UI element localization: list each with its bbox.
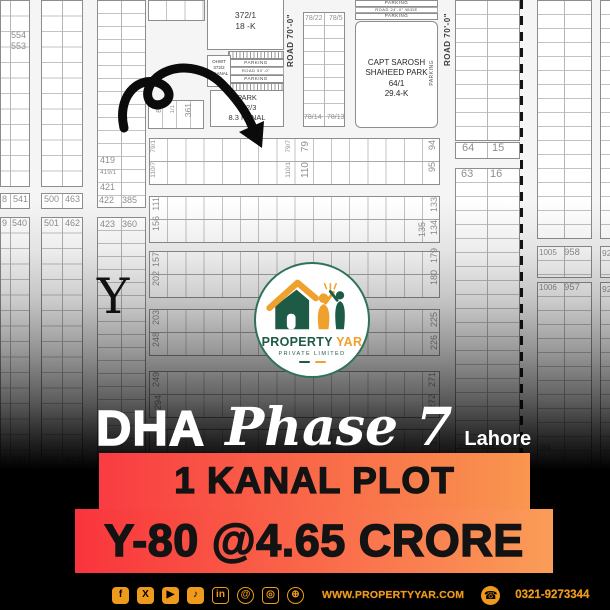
map-grid-block: [455, 0, 520, 141]
tiktok-icon: ♪: [187, 587, 204, 604]
plot-label: 180: [430, 270, 439, 285]
parking-label: PARKING: [385, 14, 408, 19]
plot-label: 94: [541, 443, 550, 452]
plot-label: 110/7: [151, 162, 158, 178]
road-70-label-right: ROAD 70'-0": [443, 13, 452, 66]
plot-label: 202: [152, 271, 161, 286]
plot-label: 134: [430, 220, 439, 235]
logo-dashes: [299, 361, 326, 364]
plot-label: 421: [100, 183, 115, 192]
plot-label: 419: [100, 156, 115, 165]
plot-label: 248: [152, 332, 161, 347]
plot-label: 419/1: [100, 170, 116, 177]
road-70-label-left: ROAD 70'-0": [286, 14, 295, 67]
map-grid-block: [41, 217, 83, 477]
plot-label: 111: [152, 197, 161, 211]
offer-line-1: 1 KANAL PLOT: [174, 460, 455, 502]
offer-band-2: Y-80 @4.65 CRORE: [75, 509, 553, 573]
plot-label: 226: [430, 335, 439, 350]
road-24-label: ROAD 24'-0" WIDE: [375, 8, 417, 12]
plot-label: 64: [462, 143, 474, 154]
headline-city: Lahore: [464, 428, 531, 450]
plot-label: 156: [152, 216, 161, 231]
parking-strip: PARKING: [355, 0, 438, 7]
plot-label: 271: [428, 372, 437, 387]
map-grid-block: [600, 0, 610, 239]
phone-number: 0321-9273344: [515, 589, 589, 601]
plot-label: 95: [428, 162, 437, 172]
logo-wordmark: PROPERTY YAR: [262, 336, 363, 349]
headline-dha: DHA: [96, 402, 205, 456]
logo-name-property: PROPERTY: [262, 335, 333, 349]
plot-label: 110/1: [286, 162, 293, 178]
plot-label: 63: [461, 169, 473, 180]
plot-label: 553: [11, 42, 26, 51]
plot-label: 179: [430, 248, 439, 263]
logo-name-yar: YAR: [336, 335, 362, 349]
plot-label: 463: [65, 195, 80, 204]
logo-house-icon: [266, 277, 358, 335]
instagram-icon: ◎: [262, 587, 279, 604]
youtube-icon: ▶: [162, 587, 179, 604]
plot-label: 520: [43, 456, 58, 465]
block-372-line1: 372/1: [207, 10, 284, 21]
plot-label: 16: [490, 169, 502, 180]
x-icon: X: [137, 587, 154, 604]
plot-label: 92: [602, 249, 610, 258]
plot-label: 15: [492, 143, 504, 154]
footer-bar: fX▶♪in@◎⊕ WWW.PROPERTYYAR.COM ☎ 0321-927…: [0, 580, 610, 610]
hand-drawn-arrow: [100, 38, 280, 156]
plot-label: 521: [12, 456, 27, 465]
plot-label: 94: [428, 140, 437, 150]
plot-label: 8: [2, 456, 7, 465]
map-grid-block: [600, 282, 610, 477]
captpark-line2: SHAHEED PARK: [355, 68, 438, 78]
plot-label: 500: [44, 195, 59, 204]
flyer-canvas: 372/1 18 -K PARKING ROAD 50'-0" PARKING …: [0, 0, 610, 610]
plot-label: 540: [12, 219, 27, 228]
plot-label: 443: [65, 456, 80, 465]
plot-label: 78/5: [329, 15, 343, 22]
plot-label: 360: [122, 220, 137, 229]
plot-label: 423: [100, 220, 115, 229]
plot-label: 78/22: [305, 15, 323, 22]
plot-label: 1006: [539, 284, 557, 292]
globe-icon: ⊕: [287, 587, 304, 604]
plot-label: 110: [301, 162, 311, 178]
threads-icon: @: [237, 587, 254, 604]
property-yar-logo: PROPERTY YAR PRIVATE LIMITED: [254, 262, 370, 378]
map-block-372-1-label: 372/1 18 -K: [207, 10, 284, 32]
plot-label: 157: [152, 252, 161, 267]
whatsapp-phone-icon: ☎: [481, 586, 500, 605]
phone-glyph: ☎: [484, 589, 498, 602]
offer-line-2: Y-80 @4.65 CRORE: [104, 515, 524, 567]
map-grid-block: [0, 217, 30, 477]
plot-label: 92: [602, 285, 610, 294]
logo-subtitle: PRIVATE LIMITED: [279, 351, 346, 357]
parking-label-vertical: PARKING: [429, 60, 435, 86]
section-letter-y: Y: [97, 268, 129, 325]
map-grid-block: [0, 0, 30, 187]
plot-label: 79: [301, 141, 311, 152]
captpark-line3: 64/1: [355, 79, 438, 89]
map-grid-block: [41, 0, 83, 187]
map-grid-block: [149, 196, 440, 243]
plot-label: 541: [13, 195, 28, 204]
headline: DHAPhase 7Lahore: [96, 397, 531, 458]
block-372-line2: 18 -K: [207, 21, 284, 32]
plot-label: 1005: [539, 249, 557, 257]
parking-strip: PARKING: [355, 13, 438, 20]
plot-label: 385: [122, 196, 137, 205]
plot-label: 78/13: [327, 114, 345, 121]
plot-label: 79/7: [286, 140, 293, 153]
social-icons: fX▶♪in@◎⊕: [112, 587, 304, 604]
parking-label: PARKING: [385, 1, 408, 6]
plot-label: 78/14: [304, 114, 322, 121]
plot-label: 554: [11, 31, 26, 40]
plot-label: 501: [44, 219, 59, 228]
map-block-capt-sarosh-park-label: CAPT SAROSH SHAHEED PARK 64/1 29.4-K: [355, 58, 438, 100]
plot-label: 133: [430, 197, 439, 212]
headline-phase: Phase 7: [225, 397, 452, 458]
map-grid-block: [303, 12, 345, 127]
plot-label: 249: [152, 372, 161, 387]
plot-label: 203: [152, 310, 161, 325]
website-url: WWW.PROPERTYYAR.COM: [322, 589, 464, 601]
plot-label: 462: [65, 219, 80, 228]
captpark-line4: 29.4-K: [355, 89, 438, 99]
plot-label: 225: [430, 312, 439, 327]
offer-band-1: 1 KANAL PLOT: [99, 453, 530, 509]
map-grid-block: [537, 0, 592, 239]
plot-label: 135: [418, 222, 427, 237]
plot-label: 957: [564, 283, 580, 293]
facebook-icon: f: [112, 587, 129, 604]
plot-label: 958: [564, 248, 580, 258]
plot-label: 422: [99, 196, 114, 205]
captpark-line1: CAPT SAROSH: [355, 58, 438, 68]
linkedin-icon: in: [212, 587, 229, 604]
plot-label: 9: [2, 219, 7, 228]
plot-label: 8: [2, 195, 7, 204]
map-grid-block: [148, 0, 205, 21]
